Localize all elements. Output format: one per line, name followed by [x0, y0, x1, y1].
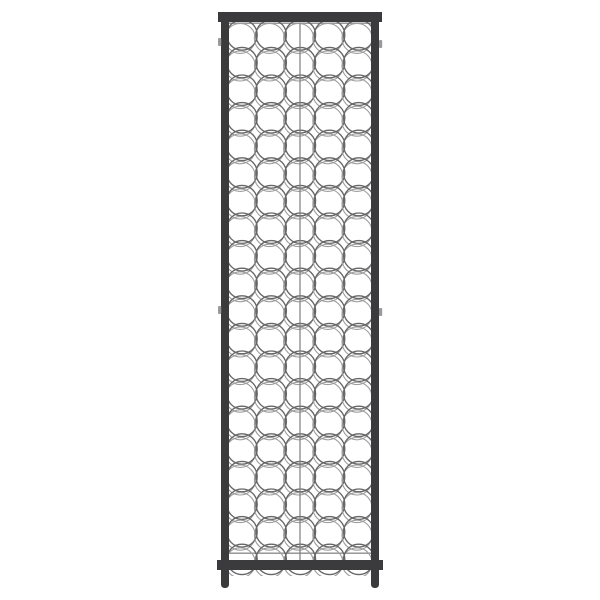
bottle-slot — [225, 241, 257, 275]
wire-ring-back — [342, 493, 372, 523]
bottle-slot — [225, 323, 257, 357]
wire-ring-back — [342, 299, 372, 329]
wire-ring-front — [227, 434, 257, 464]
wire-ring-front — [344, 20, 374, 50]
bottle-slot — [254, 47, 286, 81]
mount-tab — [379, 40, 382, 48]
bottle-slot — [313, 489, 345, 523]
bottle-slot — [254, 323, 286, 357]
wire-ring-front — [314, 213, 344, 243]
wire-ring-back — [254, 134, 284, 164]
wire-ring-front — [314, 323, 344, 353]
bottle-slot — [313, 268, 345, 302]
wire-ring-front — [227, 268, 257, 298]
wire-ring-front — [256, 130, 286, 160]
wire-ring-back — [225, 327, 255, 357]
bottle-slot — [254, 103, 286, 137]
wire-ring-back — [225, 23, 255, 53]
wire-ring-front — [314, 434, 344, 464]
wire-ring-back — [284, 493, 314, 523]
wire-ring-back — [225, 106, 255, 136]
wire-ring-back — [342, 327, 372, 357]
bottle-slot — [342, 130, 374, 164]
wire-ring-back — [313, 520, 343, 550]
wire-ring-back — [225, 134, 255, 164]
wire-ring-front — [256, 296, 286, 326]
bottle-slot — [342, 268, 374, 302]
bottle-slot — [313, 406, 345, 440]
wire-ring-back — [342, 355, 372, 385]
wire-ring-front — [227, 20, 257, 50]
bottle-slot — [254, 75, 286, 109]
mount-tab — [379, 308, 382, 316]
bottle-slot — [225, 103, 257, 137]
wire-ring-back — [225, 299, 255, 329]
frame-right-bar — [371, 22, 379, 562]
wire-ring-back — [313, 217, 343, 247]
bottle-slot — [254, 158, 286, 192]
bottle-slot — [254, 213, 286, 247]
frame-top-bar — [218, 12, 382, 22]
bottle-slot — [225, 517, 257, 551]
wire-ring-back — [254, 161, 284, 191]
wire-ring-back — [284, 217, 314, 247]
wire-ring-back — [313, 272, 343, 302]
wire-ring-front — [256, 268, 286, 298]
wire-ring-front — [256, 544, 286, 574]
wire-ring-back — [254, 355, 284, 385]
wire-ring-front — [227, 461, 257, 491]
wire-ring-back — [254, 327, 284, 357]
wire-ring-back — [284, 299, 314, 329]
wire-ring-back — [284, 161, 314, 191]
bottle-slot — [313, 434, 345, 468]
bottle-slot — [225, 489, 257, 523]
bottle-slot — [225, 461, 257, 495]
bottle-slot — [342, 185, 374, 219]
wire-ring-back — [225, 51, 255, 81]
bottle-slot — [254, 517, 286, 551]
bottle-slot — [254, 296, 286, 330]
bottle-slot — [342, 351, 374, 385]
wire-ring-back — [313, 79, 343, 109]
wire-ring-back — [254, 465, 284, 495]
wire-ring-back — [254, 493, 284, 523]
wire-ring-front — [314, 268, 344, 298]
bottle-slot — [342, 20, 374, 54]
wire-ring-back — [284, 410, 314, 440]
wire-ring-front — [344, 103, 374, 133]
bottle-slot — [313, 461, 345, 495]
wire-ring-back — [284, 244, 314, 274]
wire-ring-back — [254, 272, 284, 302]
wire-ring-front — [314, 379, 344, 409]
bottle-slot — [313, 130, 345, 164]
wire-ring-front — [344, 406, 374, 436]
bottle-slot — [225, 47, 257, 81]
bottle-slot — [313, 517, 345, 551]
wire-ring-back — [284, 272, 314, 302]
wire-ring-back — [313, 244, 343, 274]
wire-ring-front — [314, 75, 344, 105]
wire-ring-front — [344, 158, 374, 188]
bottle-slot — [342, 379, 374, 413]
wire-ring-front — [256, 517, 286, 547]
wire-ring-back — [225, 355, 255, 385]
wire-ring-back — [284, 327, 314, 357]
wire-ring-front — [227, 323, 257, 353]
wire-ring-back — [313, 161, 343, 191]
bottle-slot — [225, 213, 257, 247]
wire-ring-back — [313, 355, 343, 385]
wire-ring-back — [313, 51, 343, 81]
bottle-slot — [342, 461, 374, 495]
wire-ring-front — [256, 185, 286, 215]
bottle-slot — [225, 268, 257, 302]
wire-ring-back — [254, 51, 284, 81]
wire-ring-back — [254, 520, 284, 550]
bottle-slot — [342, 517, 374, 551]
bottle-slot — [313, 213, 345, 247]
wire-ring-back — [225, 493, 255, 523]
bottle-slot — [254, 20, 286, 54]
wire-ring-front — [314, 130, 344, 160]
bottle-slot — [313, 158, 345, 192]
wire-ring-front — [344, 241, 374, 271]
bottle-slot — [313, 75, 345, 109]
wire-ring-back — [342, 106, 372, 136]
wire-ring-back — [284, 382, 314, 412]
wire-ring-front — [344, 517, 374, 547]
wire-ring-front — [256, 20, 286, 50]
wire-ring-front — [314, 351, 344, 381]
wire-ring-front — [344, 461, 374, 491]
wire-ring-back — [254, 299, 284, 329]
bottle-slot — [225, 434, 257, 468]
wire-ring-back — [284, 134, 314, 164]
wire-ring-front — [227, 185, 257, 215]
wire-ring-front — [227, 158, 257, 188]
wire-ring-front — [314, 517, 344, 547]
wine-rack — [0, 0, 600, 600]
bottle-slot — [313, 47, 345, 81]
wire-ring-back — [313, 106, 343, 136]
bottle-slot — [313, 103, 345, 137]
bottle-slot — [225, 406, 257, 440]
bottle-slot — [254, 461, 286, 495]
bottle-slot — [342, 213, 374, 247]
wire-ring-front — [344, 489, 374, 519]
bottle-slot — [313, 185, 345, 219]
bottle-slot — [254, 379, 286, 413]
wire-ring-front — [314, 406, 344, 436]
wire-ring-front — [227, 213, 257, 243]
wire-ring-back — [342, 272, 372, 302]
wire-ring-front — [344, 351, 374, 381]
wire-ring-back — [225, 161, 255, 191]
wire-ring-back — [342, 410, 372, 440]
bottle-slot — [342, 434, 374, 468]
wire-ring-back — [313, 23, 343, 53]
wire-ring-front — [344, 434, 374, 464]
wire-ring-back — [254, 410, 284, 440]
wire-ring-back — [284, 23, 314, 53]
wire-ring-front — [344, 47, 374, 77]
bottle-slot — [313, 323, 345, 357]
wire-ring-back — [225, 217, 255, 247]
bottle-slot — [225, 158, 257, 192]
wire-ring-back — [254, 23, 284, 53]
wire-ring-front — [256, 489, 286, 519]
bottle-slot — [254, 130, 286, 164]
bottle-slot — [254, 434, 286, 468]
bottle-slot — [225, 379, 257, 413]
product-photo — [0, 0, 600, 600]
wire-ring-front — [314, 158, 344, 188]
wire-ring-back — [342, 134, 372, 164]
wire-ring-back — [313, 465, 343, 495]
wire-ring-back — [313, 134, 343, 164]
wire-ring-front — [314, 241, 344, 271]
wire-ring-back — [342, 437, 372, 467]
bottle-slot — [254, 241, 286, 275]
bottle-slot — [254, 351, 286, 385]
wire-ring-back — [254, 189, 284, 219]
wire-ring-front — [344, 213, 374, 243]
wire-ring-front — [256, 103, 286, 133]
wire-ring-front — [314, 47, 344, 77]
wire-ring-back — [284, 51, 314, 81]
bottle-slot — [225, 185, 257, 219]
wire-ring-back — [225, 382, 255, 412]
wire-ring-front — [227, 75, 257, 105]
wire-ring-front — [314, 185, 344, 215]
wire-ring-back — [284, 189, 314, 219]
bottle-slot — [254, 185, 286, 219]
bottle-slot — [342, 296, 374, 330]
wire-ring-back — [225, 79, 255, 109]
wire-ring-back — [342, 51, 372, 81]
wire-ring-front — [314, 461, 344, 491]
mount-tab — [218, 38, 221, 46]
wire-ring-front — [344, 379, 374, 409]
wire-ring-front — [227, 296, 257, 326]
bottle-slot — [225, 20, 257, 54]
wire-ring-back — [342, 465, 372, 495]
wire-ring-back — [284, 465, 314, 495]
bottle-slot — [313, 379, 345, 413]
bottle-slot — [313, 351, 345, 385]
wire-ring-back — [254, 106, 284, 136]
wire-ring-back — [254, 382, 284, 412]
wire-ring-front — [314, 103, 344, 133]
wire-ring-back — [225, 520, 255, 550]
bottle-slot — [342, 47, 374, 81]
wire-ring-back — [313, 299, 343, 329]
bottle-slot — [254, 406, 286, 440]
wire-ring-back — [313, 437, 343, 467]
bottle-slot — [342, 323, 374, 357]
bottle-slot — [254, 268, 286, 302]
wire-ring-back — [313, 327, 343, 357]
wire-ring-back — [254, 244, 284, 274]
bottle-slot — [313, 296, 345, 330]
wire-ring-front — [344, 75, 374, 105]
bottle-slot — [225, 296, 257, 330]
wire-ring-front — [256, 379, 286, 409]
wire-ring-front — [344, 268, 374, 298]
wire-ring-back — [313, 493, 343, 523]
wire-ring-back — [342, 382, 372, 412]
wire-ring-front — [314, 489, 344, 519]
wire-ring-back — [254, 79, 284, 109]
wire-ring-front — [344, 544, 374, 574]
wire-ring-back — [225, 465, 255, 495]
bottle-slot — [342, 489, 374, 523]
wire-ring-front — [256, 75, 286, 105]
wire-ring-front — [344, 130, 374, 160]
wire-ring-front — [256, 406, 286, 436]
wire-ring-back — [342, 520, 372, 550]
wire-ring-back — [254, 437, 284, 467]
wire-ring-front — [314, 296, 344, 326]
wire-ring-front — [256, 461, 286, 491]
wire-ring-front — [314, 20, 344, 50]
wire-ring-back — [342, 217, 372, 247]
mount-tab — [218, 306, 221, 314]
wire-ring-back — [225, 244, 255, 274]
wire-ring-front — [344, 323, 374, 353]
frame-bottom-bar — [217, 560, 383, 570]
wire-ring-front — [227, 351, 257, 381]
wire-ring-back — [342, 79, 372, 109]
wire-ring-back — [284, 79, 314, 109]
wire-ring-front — [256, 241, 286, 271]
wire-ring-front — [227, 241, 257, 271]
wire-ring-front — [227, 47, 257, 77]
wire-ring-front — [227, 130, 257, 160]
wire-ring-back — [284, 520, 314, 550]
wire-ring-back — [342, 189, 372, 219]
wire-ring-front — [227, 379, 257, 409]
wire-ring-front — [344, 296, 374, 326]
wire-ring-back — [313, 189, 343, 219]
wire-ring-back — [313, 382, 343, 412]
wire-ring-back — [225, 189, 255, 219]
wire-ring-front — [227, 406, 257, 436]
bottle-slot — [225, 75, 257, 109]
bottle-slot — [342, 241, 374, 275]
bottle-slot — [313, 241, 345, 275]
bottle-slot — [313, 20, 345, 54]
wire-ring-back — [225, 437, 255, 467]
wire-ring-front — [227, 103, 257, 133]
wire-ring-back — [313, 410, 343, 440]
wire-ring-back — [342, 161, 372, 191]
wire-ring-back — [225, 410, 255, 440]
wire-ring-front — [256, 351, 286, 381]
bottle-slot — [342, 158, 374, 192]
wire-ring-back — [284, 355, 314, 385]
wire-ring-front — [256, 158, 286, 188]
wire-ring-back — [254, 217, 284, 247]
bottle-slot — [225, 130, 257, 164]
wire-ring-back — [284, 106, 314, 136]
bottle-slot — [342, 406, 374, 440]
wire-ring-back — [342, 244, 372, 274]
wire-ring-front — [256, 434, 286, 464]
frame-left-bar — [221, 22, 229, 562]
wire-ring-front — [256, 47, 286, 77]
wire-ring-front — [227, 517, 257, 547]
bottle-slot — [225, 351, 257, 385]
wire-ring-front — [344, 185, 374, 215]
wire-ring-front — [256, 213, 286, 243]
wire-ring-front — [227, 544, 257, 574]
wire-ring-back — [342, 23, 372, 53]
bottle-slot — [342, 75, 374, 109]
wire-ring-back — [225, 272, 255, 302]
bottle-slot — [254, 489, 286, 523]
wire-ring-front — [256, 323, 286, 353]
wire-ring-back — [284, 437, 314, 467]
wire-ring-front — [227, 489, 257, 519]
wire-ring-front — [314, 544, 344, 574]
bottle-slot — [342, 103, 374, 137]
